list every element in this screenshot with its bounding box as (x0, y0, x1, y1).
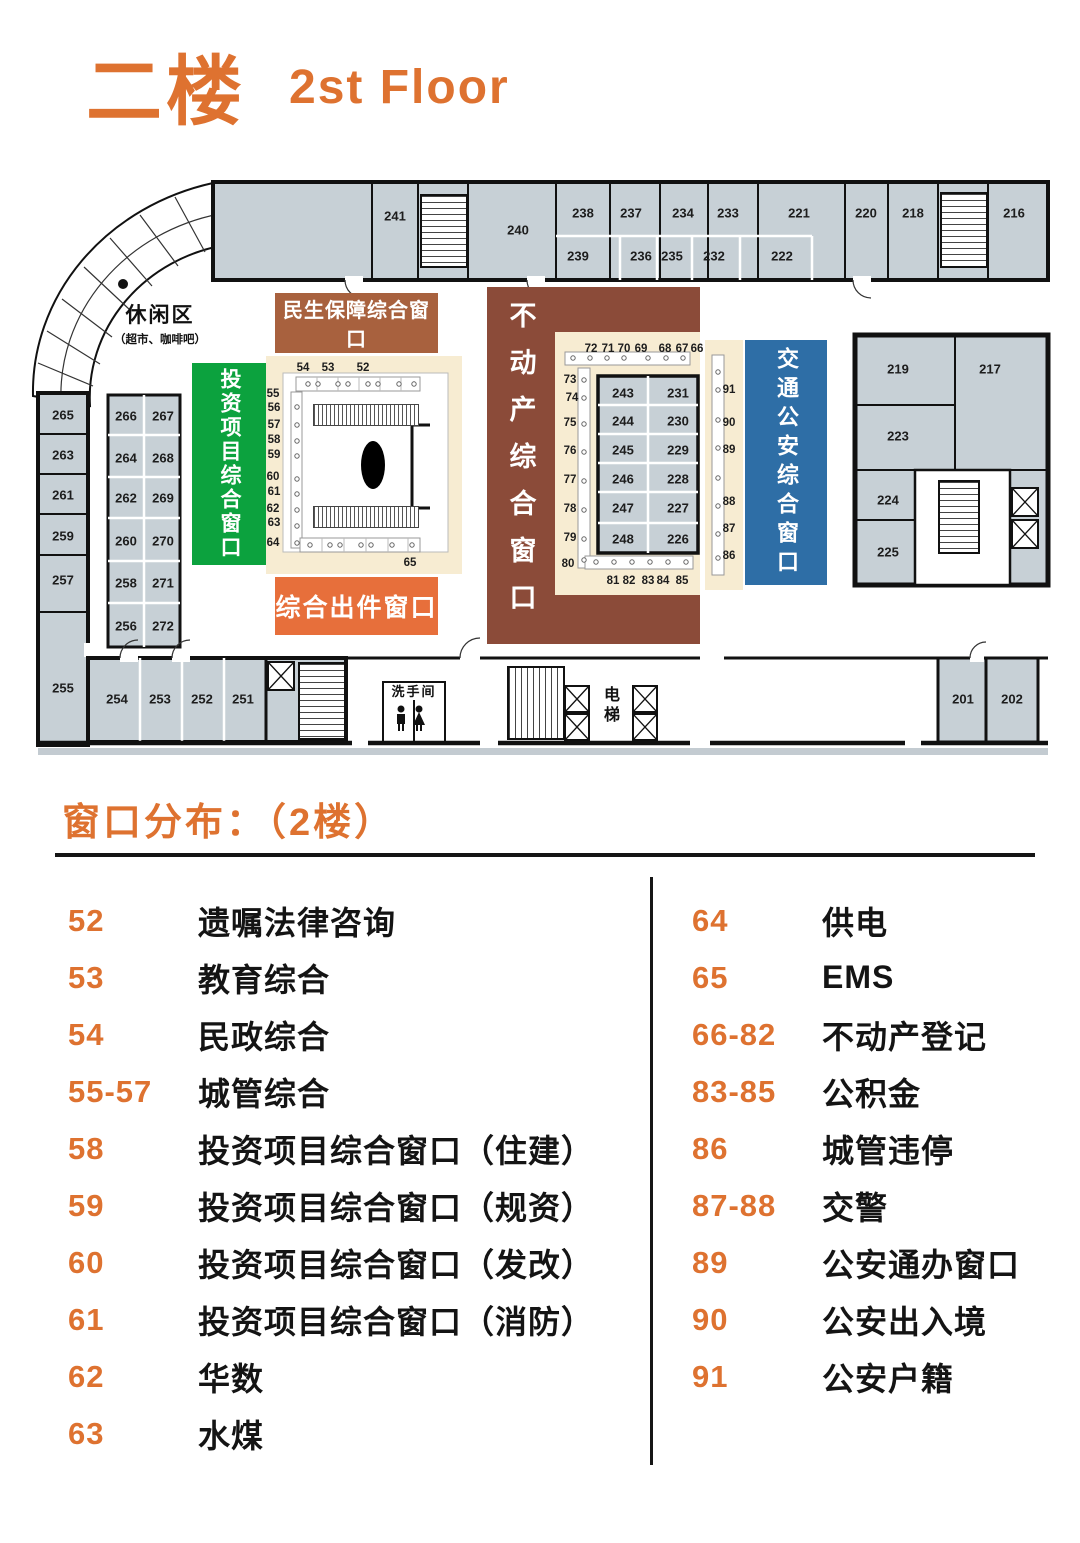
restroom-label: 洗手间 (377, 681, 451, 700)
window-78: 78 (564, 503, 577, 515)
legend-item-label: 公安出入境 (822, 1297, 987, 1343)
room-263: 263 (52, 448, 74, 463)
window-80: 80 (562, 558, 575, 570)
room-266: 266 (115, 409, 137, 424)
legend-item-number: 52 (68, 903, 198, 939)
window-75: 75 (564, 417, 577, 429)
leisure-area-label: 休闲区 （超市、咖啡吧） (100, 299, 220, 347)
room-223: 223 (887, 429, 909, 444)
legend-item: 53教育综合 (68, 949, 643, 1006)
room-265: 265 (52, 408, 74, 423)
room-221: 221 (788, 206, 810, 221)
legend-item-label: 投资项目综合窗口（住建） (198, 1126, 594, 1172)
room-233: 233 (717, 206, 739, 221)
legend-divider-vertical (650, 877, 653, 1465)
window-85: 85 (676, 575, 689, 587)
window-90: 90 (723, 417, 736, 429)
room-236: 236 (630, 249, 652, 264)
window-69: 69 (635, 343, 648, 355)
room-230: 230 (667, 414, 689, 429)
staircase-bottom-middle (507, 666, 565, 740)
room-226: 226 (667, 532, 689, 547)
legend-item: 55-57城管综合 (68, 1063, 643, 1120)
room-270: 270 (152, 534, 174, 549)
legend-item: 89公安通办窗口 (692, 1234, 1072, 1291)
staircase-right-block (938, 480, 980, 554)
room-228: 228 (667, 472, 689, 487)
legend-item-label: 投资项目综合窗口（发改） (198, 1240, 594, 1286)
window-79: 79 (564, 532, 577, 544)
legend-item-number: 83-85 (692, 1074, 822, 1110)
legend-item-number: 53 (68, 960, 198, 996)
room-225: 225 (877, 545, 899, 560)
banner-budongchan: 不动产综合窗口 (487, 290, 555, 640)
room-232: 232 (703, 249, 725, 264)
banner-touzi: 投资项目综合窗口 (192, 363, 266, 565)
room-202: 202 (1001, 692, 1023, 707)
room-254: 254 (106, 692, 128, 707)
window-72: 72 (585, 343, 598, 355)
room-201: 201 (952, 692, 974, 707)
room-257: 257 (52, 573, 74, 588)
room-271: 271 (152, 576, 174, 591)
room-251: 251 (232, 692, 254, 707)
room-255: 255 (52, 681, 74, 696)
legend-item-number: 60 (68, 1245, 198, 1281)
legend-right-column: 64供电 65EMS 66-82不动产登记 83-85公积金 86城管违停 87… (692, 892, 1072, 1405)
legend-item: 87-88交警 (692, 1177, 1072, 1234)
room-217: 217 (979, 362, 1001, 377)
window-84: 84 (657, 575, 670, 587)
banner-jiaotong: 交通公安综合窗口 (745, 340, 827, 585)
legend-item: 52遗嘱法律咨询 (68, 892, 643, 949)
window-60: 60 (267, 471, 280, 483)
room-246: 246 (612, 472, 634, 487)
legend-item-number: 89 (692, 1245, 822, 1281)
legend-item-number: 58 (68, 1131, 198, 1167)
room-222: 222 (771, 249, 793, 264)
window-61: 61 (268, 486, 281, 498)
legend-item-number: 63 (68, 1416, 198, 1452)
room-248: 248 (612, 532, 634, 547)
legend-item-label: 供电 (822, 898, 888, 944)
room-245: 245 (612, 443, 634, 458)
legend-item: 83-85公积金 (692, 1063, 1072, 1120)
room-264: 264 (115, 451, 137, 466)
legend-item-number: 86 (692, 1131, 822, 1167)
room-262: 262 (115, 491, 137, 506)
room-258: 258 (115, 576, 137, 591)
window-67: 67 (676, 343, 689, 355)
room-224: 224 (877, 493, 899, 508)
window-55: 55 (267, 388, 280, 400)
legend-item-number: 65 (692, 960, 822, 996)
window-59: 59 (268, 449, 281, 461)
window-62: 62 (267, 503, 280, 515)
room-218: 218 (902, 206, 924, 221)
legend-item: 66-82不动产登记 (692, 1006, 1072, 1063)
room-231: 231 (667, 386, 689, 401)
elevator-label: 电梯 (597, 682, 621, 730)
staircase-top-left (420, 194, 468, 268)
legend-item-label: 华数 (198, 1354, 264, 1400)
room-272: 272 (152, 619, 174, 634)
floor-guide-poster: { "header": { "title_cn": "二楼", "title_e… (0, 0, 1080, 1543)
legend-item-label: EMS (822, 959, 894, 996)
window-86: 86 (723, 550, 736, 562)
room-216: 216 (1003, 206, 1025, 221)
room-240: 240 (507, 223, 529, 238)
room-247: 247 (612, 501, 634, 516)
legend-item-label: 交警 (822, 1183, 888, 1229)
legend-item: 90公安出入境 (692, 1291, 1072, 1348)
legend-item: 65EMS (692, 949, 1072, 1006)
window-88: 88 (723, 496, 736, 508)
legend-item: 62华数 (68, 1348, 643, 1405)
legend-item-label: 不动产登记 (822, 1012, 987, 1058)
room-268: 268 (152, 451, 174, 466)
escalator-bottom (313, 506, 419, 528)
window-63: 63 (268, 517, 281, 529)
legend-item: 86城管违停 (692, 1120, 1072, 1177)
leisure-dot (118, 279, 128, 289)
window-52: 52 (357, 362, 370, 374)
room-259: 259 (52, 529, 74, 544)
window-66: 66 (691, 343, 704, 355)
legend-item: 63水煤 (68, 1405, 643, 1462)
room-260: 260 (115, 534, 137, 549)
window-71: 71 (602, 343, 615, 355)
leisure-title: 休闲区 (100, 299, 220, 329)
window-81: 81 (607, 575, 620, 587)
legend-item-number: 91 (692, 1359, 822, 1395)
room-219: 219 (887, 362, 909, 377)
legend-item-number: 54 (68, 1017, 198, 1053)
legend-item: 54民政综合 (68, 1006, 643, 1063)
legend-item-number: 87-88 (692, 1188, 822, 1224)
atrium-opening (361, 441, 385, 489)
legend-item-number: 61 (68, 1302, 198, 1338)
exterior-sill (38, 748, 1048, 755)
window-74: 74 (566, 392, 579, 404)
window-56: 56 (268, 402, 281, 414)
escalator-top (313, 404, 419, 426)
window-65: 65 (404, 557, 417, 569)
legend-item-label: 公积金 (822, 1069, 921, 1115)
legend-item-label: 投资项目综合窗口（规资） (198, 1183, 594, 1229)
window-76: 76 (564, 445, 577, 457)
room-220: 220 (855, 206, 877, 221)
leisure-subtitle: （超市、咖啡吧） (100, 331, 220, 347)
window-64: 64 (267, 537, 280, 549)
legend-item-label: 城管违停 (822, 1126, 954, 1172)
room-267: 267 (152, 409, 174, 424)
legend-item-label: 公安户籍 (822, 1354, 954, 1400)
room-241: 241 (384, 209, 406, 224)
room-269: 269 (152, 491, 174, 506)
window-89: 89 (723, 444, 736, 456)
legend-item: 60投资项目综合窗口（发改） (68, 1234, 643, 1291)
legend-item-number: 55-57 (68, 1074, 198, 1110)
legend-item: 61投资项目综合窗口（消防） (68, 1291, 643, 1348)
room-243: 243 (612, 386, 634, 401)
room-227: 227 (667, 501, 689, 516)
banner-minsheng: 民生保障综合窗口 (275, 293, 438, 353)
window-91: 91 (723, 384, 736, 396)
window-68: 68 (659, 343, 672, 355)
room-237: 237 (620, 206, 642, 221)
legend-left-column: 52遗嘱法律咨询 53教育综合 54民政综合 55-57城管综合 58投资项目综… (68, 892, 643, 1462)
window-58: 58 (268, 434, 281, 446)
top-room-band (213, 182, 1048, 298)
legend-item: 91公安户籍 (692, 1348, 1072, 1405)
legend-item: 58投资项目综合窗口（住建） (68, 1120, 643, 1177)
window-73: 73 (564, 374, 577, 386)
legend-item: 59投资项目综合窗口（规资） (68, 1177, 643, 1234)
room-235: 235 (661, 249, 683, 264)
legend-title: 窗口分布：（2楼） (62, 791, 395, 846)
legend-divider-horizontal (55, 853, 1035, 857)
window-53: 53 (322, 362, 335, 374)
room-244: 244 (612, 414, 634, 429)
banner-chujian: 综合出件窗口 (275, 577, 438, 635)
window-82: 82 (623, 575, 636, 587)
window-70: 70 (618, 343, 631, 355)
room-238: 238 (572, 206, 594, 221)
staircase-bottom-left (298, 662, 346, 740)
legend-item-label: 城管综合 (198, 1069, 330, 1115)
atrium-service-zone (266, 356, 462, 574)
legend-item-number: 64 (692, 903, 822, 939)
room-253: 253 (149, 692, 171, 707)
window-57: 57 (268, 419, 281, 431)
room-256: 256 (115, 619, 137, 634)
legend-item-number: 59 (68, 1188, 198, 1224)
room-229: 229 (667, 443, 689, 458)
window-54: 54 (297, 362, 310, 374)
room-239: 239 (567, 249, 589, 264)
legend-item-label: 教育综合 (198, 955, 330, 1001)
room-234: 234 (672, 206, 694, 221)
legend-item-label: 水煤 (198, 1411, 264, 1457)
legend-item-number: 62 (68, 1359, 198, 1395)
legend-item: 64供电 (692, 892, 1072, 949)
staircase-top-right (940, 192, 988, 268)
legend-item-label: 投资项目综合窗口（消防） (198, 1297, 594, 1343)
room-252: 252 (191, 692, 213, 707)
room-261: 261 (52, 488, 74, 503)
window-83: 83 (642, 575, 655, 587)
window-77: 77 (564, 474, 577, 486)
legend-item-label: 民政综合 (198, 1012, 330, 1058)
legend-item-label: 遗嘱法律咨询 (198, 898, 396, 944)
legend-item-number: 90 (692, 1302, 822, 1338)
legend-item-label: 公安通办窗口 (822, 1240, 1020, 1286)
window-87: 87 (723, 523, 736, 535)
legend-item-number: 66-82 (692, 1017, 822, 1053)
